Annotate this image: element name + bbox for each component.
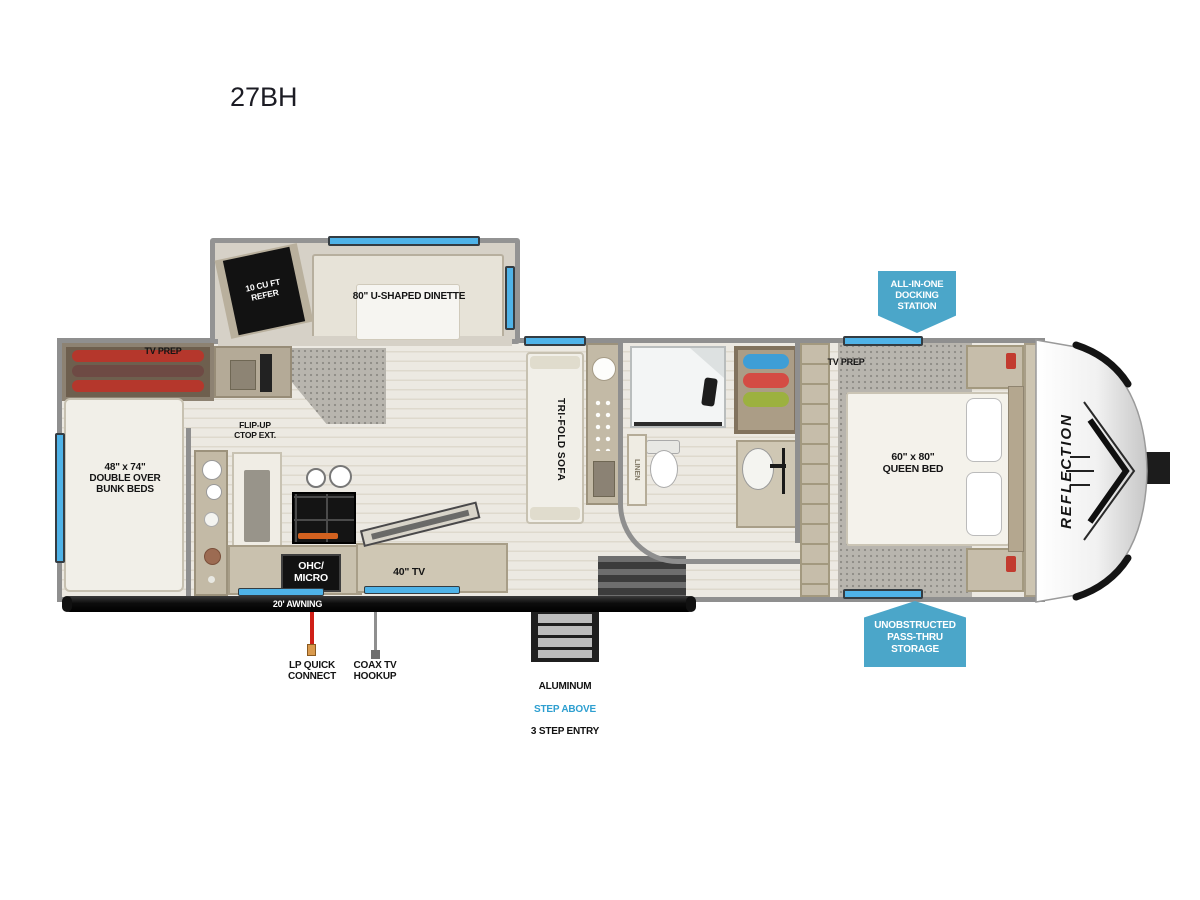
awning-bar: [62, 596, 696, 612]
bunk-tv: [260, 354, 272, 392]
bunk-tv-stand: [214, 346, 292, 398]
ohc-micro-box: OHC/ MICRO: [281, 554, 341, 592]
mid-cabinet-sink: [592, 357, 616, 381]
awning-endcap: [62, 596, 72, 612]
bedroom-divider-wall: [795, 343, 800, 543]
bunk-wardrobe-item: [72, 365, 204, 377]
bowl: [204, 548, 221, 565]
bathroom-bottom-wall: [678, 559, 800, 564]
entry-label-line2: STEP ABOVE: [519, 704, 611, 715]
plate: [204, 512, 219, 527]
headboard: [1008, 386, 1024, 552]
knob: [208, 576, 215, 583]
entry-steps: [531, 610, 599, 662]
nightstand-bottom: [966, 548, 1024, 592]
tv-40-label: 40" TV: [378, 567, 440, 579]
refrigerator-body: 10 CU FT REFER: [223, 247, 305, 335]
clothes-closet: [734, 346, 798, 434]
kitchen-sink-cabinet: [194, 450, 228, 596]
garment: [743, 354, 789, 369]
tv-prep-right-label: TV PREP: [818, 357, 874, 367]
entry-label-line1: ALUMINUM: [519, 681, 611, 692]
garment: [743, 392, 789, 407]
kitchen-sink-bowl: [206, 484, 222, 500]
badge-docking-station: ALL-IN-ONE DOCKING STATION: [878, 271, 956, 333]
coax-label: COAX TV HOOKUP: [346, 660, 404, 682]
ohc-micro-label: OHC/ MICRO: [294, 561, 328, 585]
sofa-armrest: [530, 507, 580, 520]
towel-bar-icon: [782, 448, 785, 494]
shower-door: [634, 422, 722, 426]
bunk-bed-label: 48" x 74" DOUBLE OVER BUNK BEDS: [66, 462, 184, 496]
pot: [306, 468, 326, 488]
window-bedroom-top-icon: [843, 336, 923, 346]
sofa-label: TRI-FOLD SOFA: [544, 382, 566, 498]
awning-label: 20' AWNING: [240, 599, 355, 609]
window-dinette-top-icon: [328, 236, 480, 246]
badge-passthru-storage: UNOBSTRUCTED PASS-THRU STORAGE: [864, 601, 966, 667]
front-cap: REFLECTION: [1030, 326, 1180, 616]
extinguisher-icon: [1006, 353, 1016, 369]
bunk-room-wall: [186, 428, 191, 596]
lp-connect-label: LP QUICK CONNECT: [281, 660, 343, 682]
refrigerator: 10 CU FT REFER: [215, 243, 314, 339]
window-tv-icon: [364, 586, 460, 594]
shower: [630, 346, 726, 428]
flip-up-label: FLIP-UP CTOP EXT.: [226, 421, 284, 440]
extinguisher-icon: [1006, 556, 1016, 572]
vanity-sink: [742, 448, 774, 490]
bedroom-dresser: [800, 343, 830, 597]
window-bunk-icon: [55, 433, 65, 563]
pillow: [966, 472, 1002, 536]
shower-glass: [690, 348, 724, 378]
bunk-tv-base: [230, 360, 256, 390]
awning-endcap: [686, 596, 696, 612]
window-sofa-icon: [524, 336, 586, 346]
window-dinette-side-icon: [505, 266, 515, 330]
dinette-label: 80" U-SHAPED DINETTE: [318, 291, 500, 302]
window-kitchen-icon: [238, 588, 324, 596]
mid-cabinet-dots: [593, 397, 613, 451]
floorplan-title: 27BH: [230, 82, 298, 113]
shower-head-icon: [701, 377, 718, 407]
coax-line: [374, 612, 377, 652]
kitchen-sink-bowl: [202, 460, 222, 480]
lp-connect-line: [310, 612, 314, 644]
sofa-armrest: [530, 356, 580, 369]
linen-label: LINEN: [633, 459, 641, 481]
tv-prep-left-label: TV PREP: [132, 346, 194, 356]
bathroom-left-wall: [618, 343, 623, 485]
garment: [743, 373, 789, 388]
queen-bed-label: 60" x 80" QUEEN BED: [858, 452, 968, 476]
floorplan-page: 27BH 10 CU FT REFER 80" U-SHAPED DINETTE…: [0, 0, 1200, 900]
cutting-board: [244, 470, 270, 542]
lp-connect-tip: [307, 644, 316, 656]
entry-label-line3: 3 STEP ENTRY: [519, 726, 611, 737]
entry-label: ALUMINUM STEP ABOVE 3 STEP ENTRY: [519, 670, 611, 748]
pot: [329, 465, 352, 488]
hitch-pin-icon: [1146, 452, 1170, 484]
entry-steps-treads: [538, 614, 592, 658]
pillow: [966, 398, 1002, 462]
mid-cabinet: [586, 343, 620, 505]
stove: [292, 492, 356, 544]
bunk-wardrobe-item: [72, 380, 204, 392]
reflection-logo: REFLECTION: [1058, 413, 1075, 529]
refer-label: 10 CU FT REFER: [245, 278, 283, 304]
coax-tip: [371, 650, 380, 659]
vanity: [736, 440, 798, 528]
window-bedroom-bottom-icon: [843, 589, 923, 599]
mid-cabinet-hamper: [593, 461, 615, 497]
nightstand-top: [966, 345, 1024, 389]
stove-handle: [298, 533, 338, 539]
